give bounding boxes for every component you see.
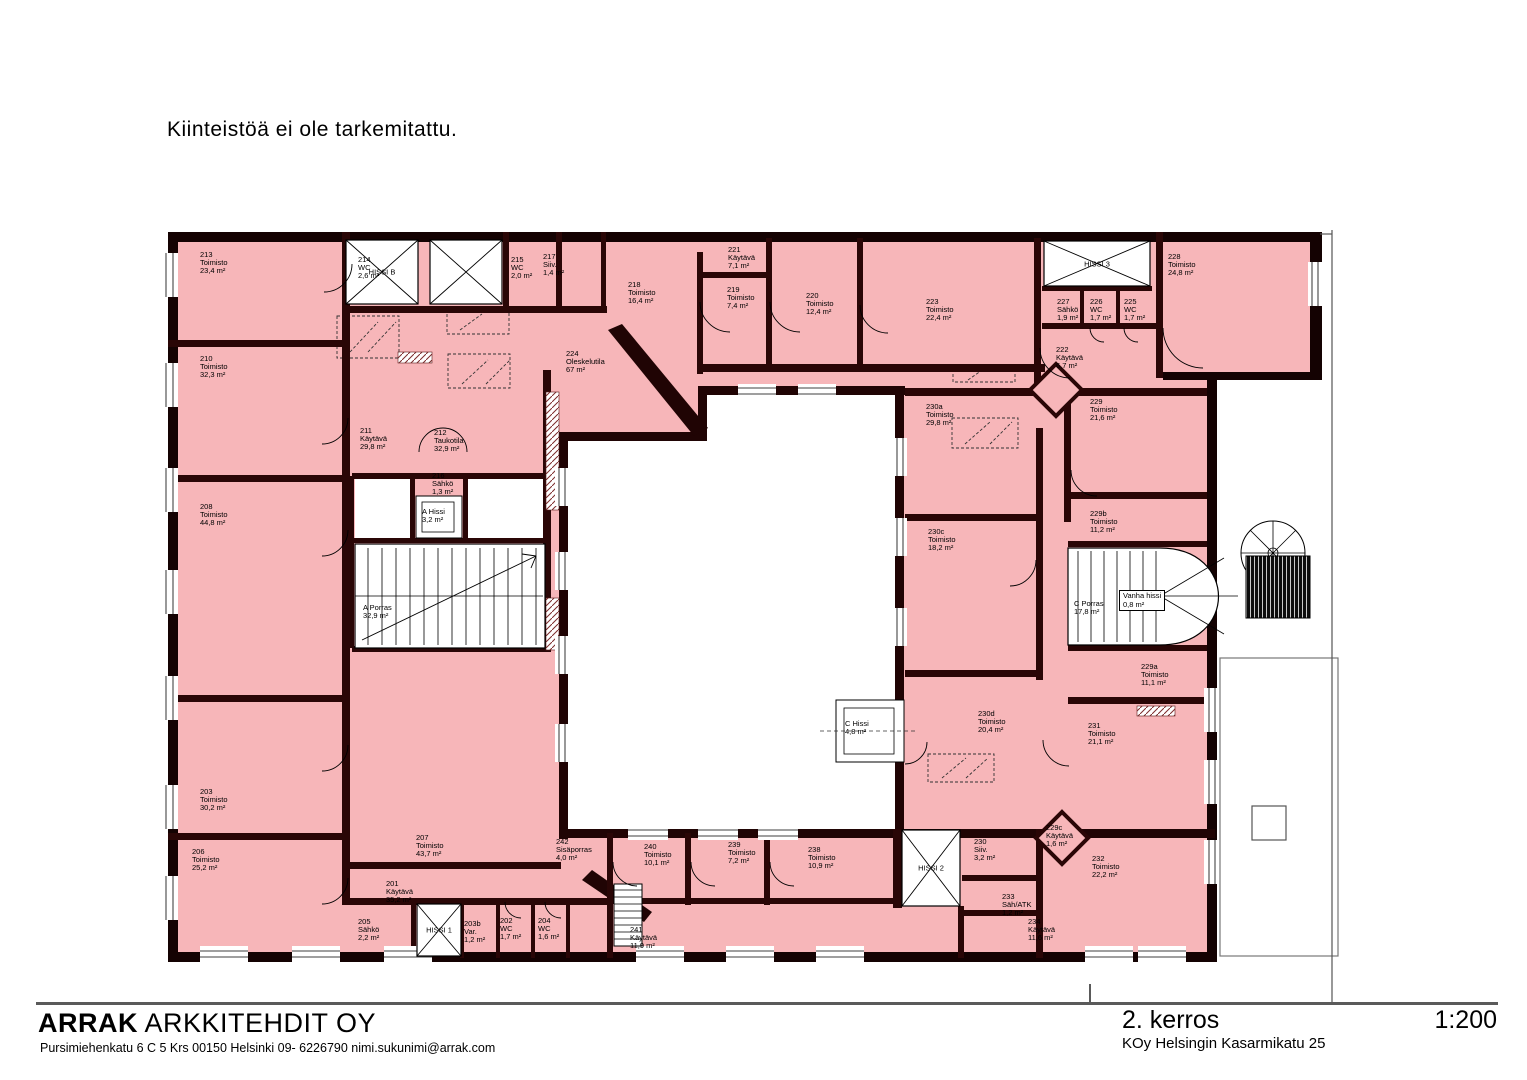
stair-sisaporras bbox=[614, 884, 642, 946]
title-block-rule bbox=[36, 1002, 1498, 1005]
elevator-hissi-2 bbox=[902, 830, 960, 906]
firm-address: Pursimiehenkatu 6 C 5 Krs 00150 Helsinki… bbox=[40, 1041, 495, 1055]
elevator-hissi-b bbox=[346, 240, 418, 304]
firm-name: ARRAK ARKKITEHDIT OY bbox=[38, 1008, 376, 1039]
metal-grate bbox=[1246, 556, 1310, 618]
firm-name-bold: ARRAK bbox=[38, 1008, 138, 1038]
stair-a-porras bbox=[355, 544, 545, 648]
title-block-divider bbox=[1089, 984, 1091, 1003]
scale-label: 1:200 bbox=[1434, 1006, 1497, 1035]
project-label: KOy Helsingin Kasarmikatu 25 bbox=[1122, 1035, 1325, 1052]
drawing-sheet: Kiinteistöä ei ole tarkemitattu. bbox=[0, 0, 1527, 1080]
elevator-a-hissi bbox=[416, 496, 462, 538]
firm-name-rest: ARKKITEHDIT OY bbox=[138, 1008, 376, 1038]
elevator-ups bbox=[430, 240, 502, 304]
elevator-hissi-1 bbox=[417, 904, 461, 956]
elevator-hissi-3 bbox=[1044, 241, 1150, 286]
floor-plan bbox=[0, 0, 1527, 1080]
floor-label: 2. kerros bbox=[1122, 1006, 1219, 1035]
